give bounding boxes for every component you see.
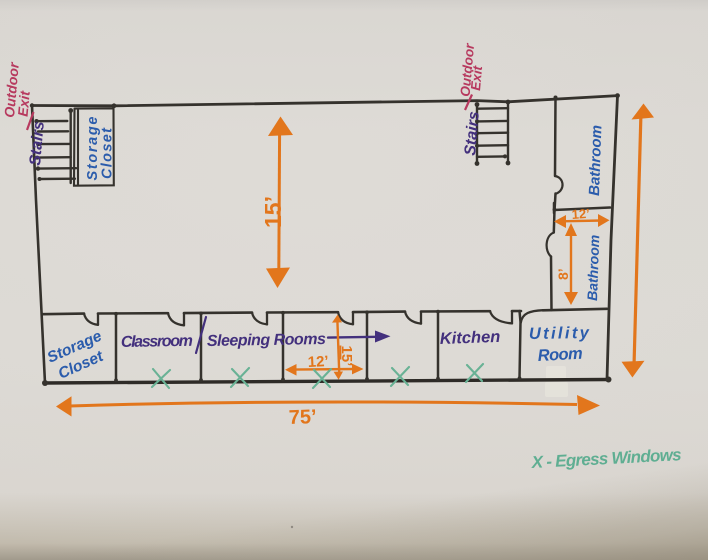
svg-text:Classroom: Classroom xyxy=(121,333,193,351)
svg-text:Exit: Exit xyxy=(15,89,33,117)
svg-text:Sleeping Rooms: Sleeping Rooms xyxy=(207,331,326,350)
svg-text:Stairs: Stairs xyxy=(462,110,483,156)
svg-text:Bathroom: Bathroom xyxy=(586,125,605,196)
svg-text:Stairs: Stairs xyxy=(27,120,48,166)
svg-text:X - Egress Windows: X - Egress Windows xyxy=(530,445,682,472)
svg-text:Kitchen: Kitchen xyxy=(440,328,501,348)
svg-text:8’: 8’ xyxy=(555,268,571,280)
svg-text:15’: 15’ xyxy=(260,196,286,228)
svg-text:75’: 75’ xyxy=(288,406,317,429)
svg-text:Bathroom: Bathroom xyxy=(584,234,602,301)
svg-text:12’: 12’ xyxy=(307,353,329,371)
svg-text:Utility: Utility xyxy=(529,324,590,343)
svg-text:Exit: Exit xyxy=(468,65,485,91)
svg-text:12’: 12’ xyxy=(571,206,590,222)
svg-text:Room: Room xyxy=(537,345,583,365)
